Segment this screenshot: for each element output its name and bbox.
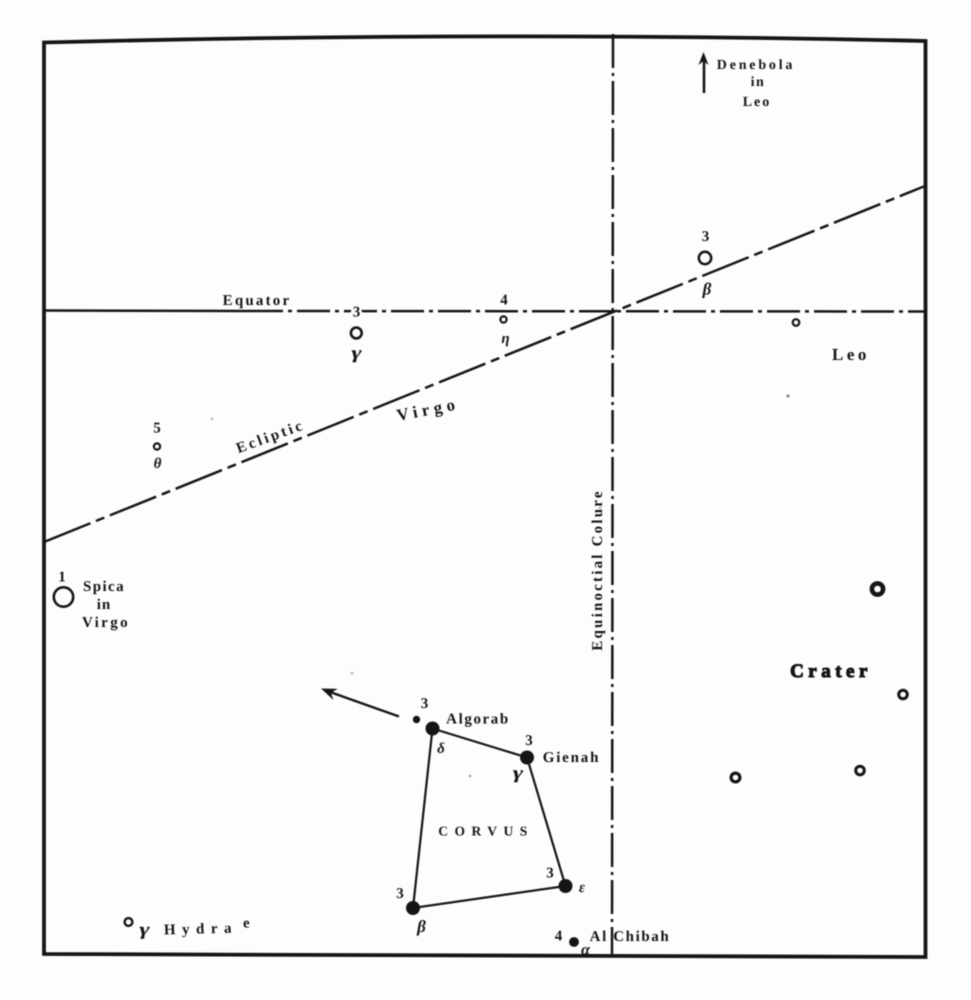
svg-text:3: 3 bbox=[396, 886, 404, 902]
svg-text:5: 5 bbox=[153, 421, 161, 437]
svg-text:3: 3 bbox=[353, 305, 361, 321]
svg-text:β: β bbox=[416, 917, 426, 936]
svg-text:η: η bbox=[501, 331, 509, 347]
svg-text:Al Chibah: Al Chibah bbox=[590, 929, 671, 945]
svg-text:γ: γ bbox=[351, 343, 362, 363]
svg-text:Virgo: Virgo bbox=[82, 615, 130, 631]
svg-text:α: α bbox=[581, 942, 591, 959]
svg-text:3: 3 bbox=[702, 229, 710, 245]
svg-text:3: 3 bbox=[525, 733, 533, 749]
svg-text:Leo: Leo bbox=[743, 95, 772, 110]
svg-text:ε: ε bbox=[579, 880, 586, 896]
svg-text:Leo: Leo bbox=[832, 345, 870, 364]
svg-text:Virgo: Virgo bbox=[395, 394, 461, 425]
svg-text:θ: θ bbox=[154, 456, 162, 472]
svg-text:3: 3 bbox=[546, 866, 554, 882]
svg-text:1: 1 bbox=[58, 570, 66, 586]
svg-text:4: 4 bbox=[500, 293, 508, 309]
svg-text:3: 3 bbox=[421, 696, 429, 712]
svg-text:e: e bbox=[243, 916, 250, 932]
svg-text:Algorab: Algorab bbox=[446, 712, 510, 728]
svg-text:γ: γ bbox=[139, 919, 150, 939]
svg-text:δ: δ bbox=[437, 741, 445, 757]
svg-text:Spica: Spica bbox=[83, 579, 125, 595]
svg-text:β: β bbox=[702, 280, 712, 299]
svg-text:Hydra: Hydra bbox=[164, 921, 239, 939]
svg-text:in: in bbox=[97, 597, 112, 613]
svg-text:γ: γ bbox=[513, 763, 524, 783]
svg-text:CORVUS: CORVUS bbox=[438, 824, 534, 839]
svg-text:4: 4 bbox=[555, 929, 563, 945]
svg-text:Gienah: Gienah bbox=[543, 750, 600, 766]
svg-text:Denebola: Denebola bbox=[717, 58, 795, 73]
svg-text:Crater: Crater bbox=[790, 661, 872, 682]
svg-text:in: in bbox=[751, 75, 766, 90]
svg-text:Equinoctial Colure: Equinoctial Colure bbox=[590, 489, 606, 650]
svg-text:Equator: Equator bbox=[223, 293, 292, 309]
